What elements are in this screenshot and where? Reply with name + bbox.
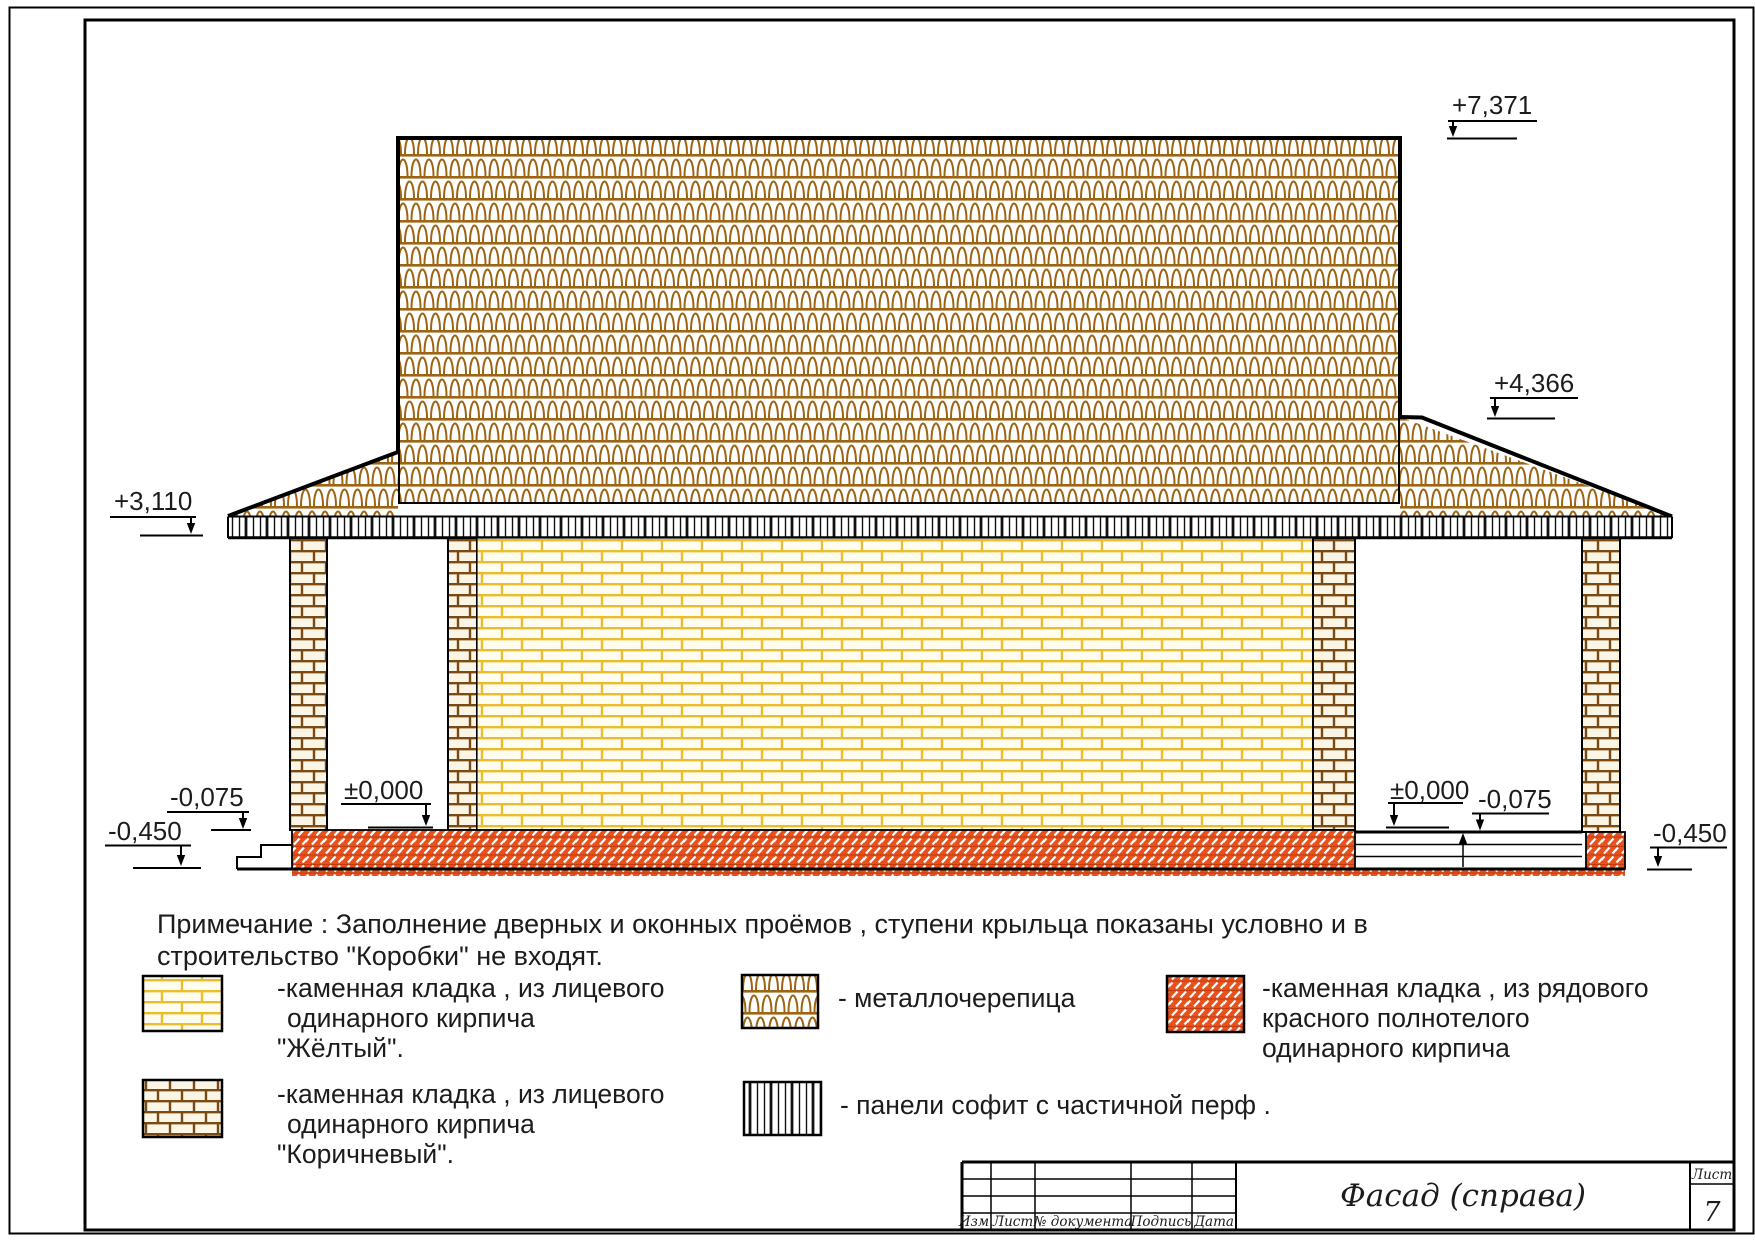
legend-yellow-line3: "Жёлтый". bbox=[277, 1033, 404, 1063]
legend-red-line1: -каменная кладка , из рядового bbox=[1262, 973, 1649, 1003]
legend-yellow-line2: одинарного кирпича bbox=[287, 1003, 535, 1033]
legend-swatch-yellow-brick bbox=[143, 976, 222, 1031]
right-steps bbox=[1355, 832, 1582, 867]
mark-zero-right: ±0,000 bbox=[1386, 775, 1469, 828]
mark-minus075-right-value: -0,075 bbox=[1478, 784, 1552, 814]
legend-red-line2: красного полнотелого bbox=[1262, 1003, 1530, 1033]
mark-ridge: +7,371 bbox=[1447, 90, 1537, 139]
legend-swatch-soffit bbox=[744, 1082, 821, 1135]
mark-minus450-right-value: -0,450 bbox=[1653, 818, 1727, 848]
legend-brown-line3: "Коричневый". bbox=[277, 1139, 454, 1169]
red-plinth bbox=[292, 830, 1355, 869]
title-block-col-izm: Изм. bbox=[958, 1214, 994, 1230]
legend-yellow-line1: -каменная кладка , из лицевого bbox=[277, 973, 665, 1003]
note: Примечание : Заполнение дверных и оконны… bbox=[157, 909, 1368, 971]
legend-swatch-red-brick bbox=[1167, 976, 1244, 1032]
roof bbox=[228, 136, 1672, 517]
mark-zero-left-value: ±0,000 bbox=[344, 775, 423, 805]
title-block-col-date: Дата bbox=[1193, 1214, 1234, 1230]
left-pilaster bbox=[448, 538, 477, 830]
mark-minus075-right: -0,075 bbox=[1472, 784, 1552, 831]
main-roof-tiles bbox=[398, 138, 1400, 503]
mark-right-roof: +4,366 bbox=[1487, 368, 1578, 419]
eaves-soffit bbox=[228, 517, 1672, 539]
mark-left-eaves-value: +3,110 bbox=[114, 486, 192, 516]
legend-swatch-metal-tile bbox=[742, 975, 818, 1028]
title-block-col-doc: № документа bbox=[1033, 1214, 1133, 1230]
left-steps bbox=[237, 845, 292, 869]
mark-zero-right-value: ±0,000 bbox=[1390, 775, 1469, 805]
legend-brown-line1: -каменная кладка , из лицевого bbox=[277, 1079, 665, 1109]
legend-brown-line2: одинарного кирпича bbox=[287, 1109, 535, 1139]
legend-red-line3: одинарного кирпича bbox=[1262, 1033, 1510, 1063]
mark-left-eaves: +3,110 bbox=[110, 486, 203, 536]
legend-soffit-line1: - панели софит с частичной перф . bbox=[840, 1090, 1271, 1120]
legend: -каменная кладка , из лицевого одинарног… bbox=[143, 973, 1649, 1169]
title-block: Изм. Лист № документа Подпись Дата Фасад… bbox=[958, 1162, 1734, 1230]
note-line-1: Примечание : Заполнение дверных и оконны… bbox=[157, 909, 1368, 939]
sheet-label: Лист bbox=[1691, 1167, 1732, 1183]
mark-minus075-left-value: -0,075 bbox=[170, 782, 244, 812]
mark-zero-left: ±0,000 bbox=[341, 775, 433, 828]
note-line-2: строительство "Коробки" не входят. bbox=[157, 941, 603, 971]
mark-ridge-value: +7,371 bbox=[1452, 90, 1532, 120]
soffit-band bbox=[228, 518, 1672, 538]
title-block-col-list: Лист bbox=[992, 1214, 1033, 1230]
red-plinth-right bbox=[1586, 832, 1625, 869]
sheet-number: 7 bbox=[1703, 1197, 1721, 1228]
right-pilaster bbox=[1313, 538, 1355, 830]
plinth-steps bbox=[237, 830, 1625, 876]
mark-minus450-left-value: -0,450 bbox=[108, 816, 182, 846]
right-porch-column bbox=[1582, 538, 1620, 832]
yellow-brick-wall bbox=[477, 538, 1313, 830]
mark-minus450-left: -0,450 bbox=[105, 816, 201, 868]
title-block-col-sign: Подпись bbox=[1130, 1214, 1192, 1230]
legend-metal-tile-line1: - металлочерепица bbox=[838, 983, 1076, 1013]
mark-minus450-right: -0,450 bbox=[1647, 818, 1727, 870]
drawing-title: Фасад (справа) bbox=[1340, 1178, 1586, 1214]
mark-right-roof-value: +4,366 bbox=[1494, 368, 1574, 398]
drawing-sheet: +7,371 +4,366 +3,110 ±0,000 bbox=[0, 0, 1755, 1240]
left-porch-column bbox=[290, 538, 327, 830]
legend-swatch-brown-brick bbox=[143, 1080, 222, 1137]
